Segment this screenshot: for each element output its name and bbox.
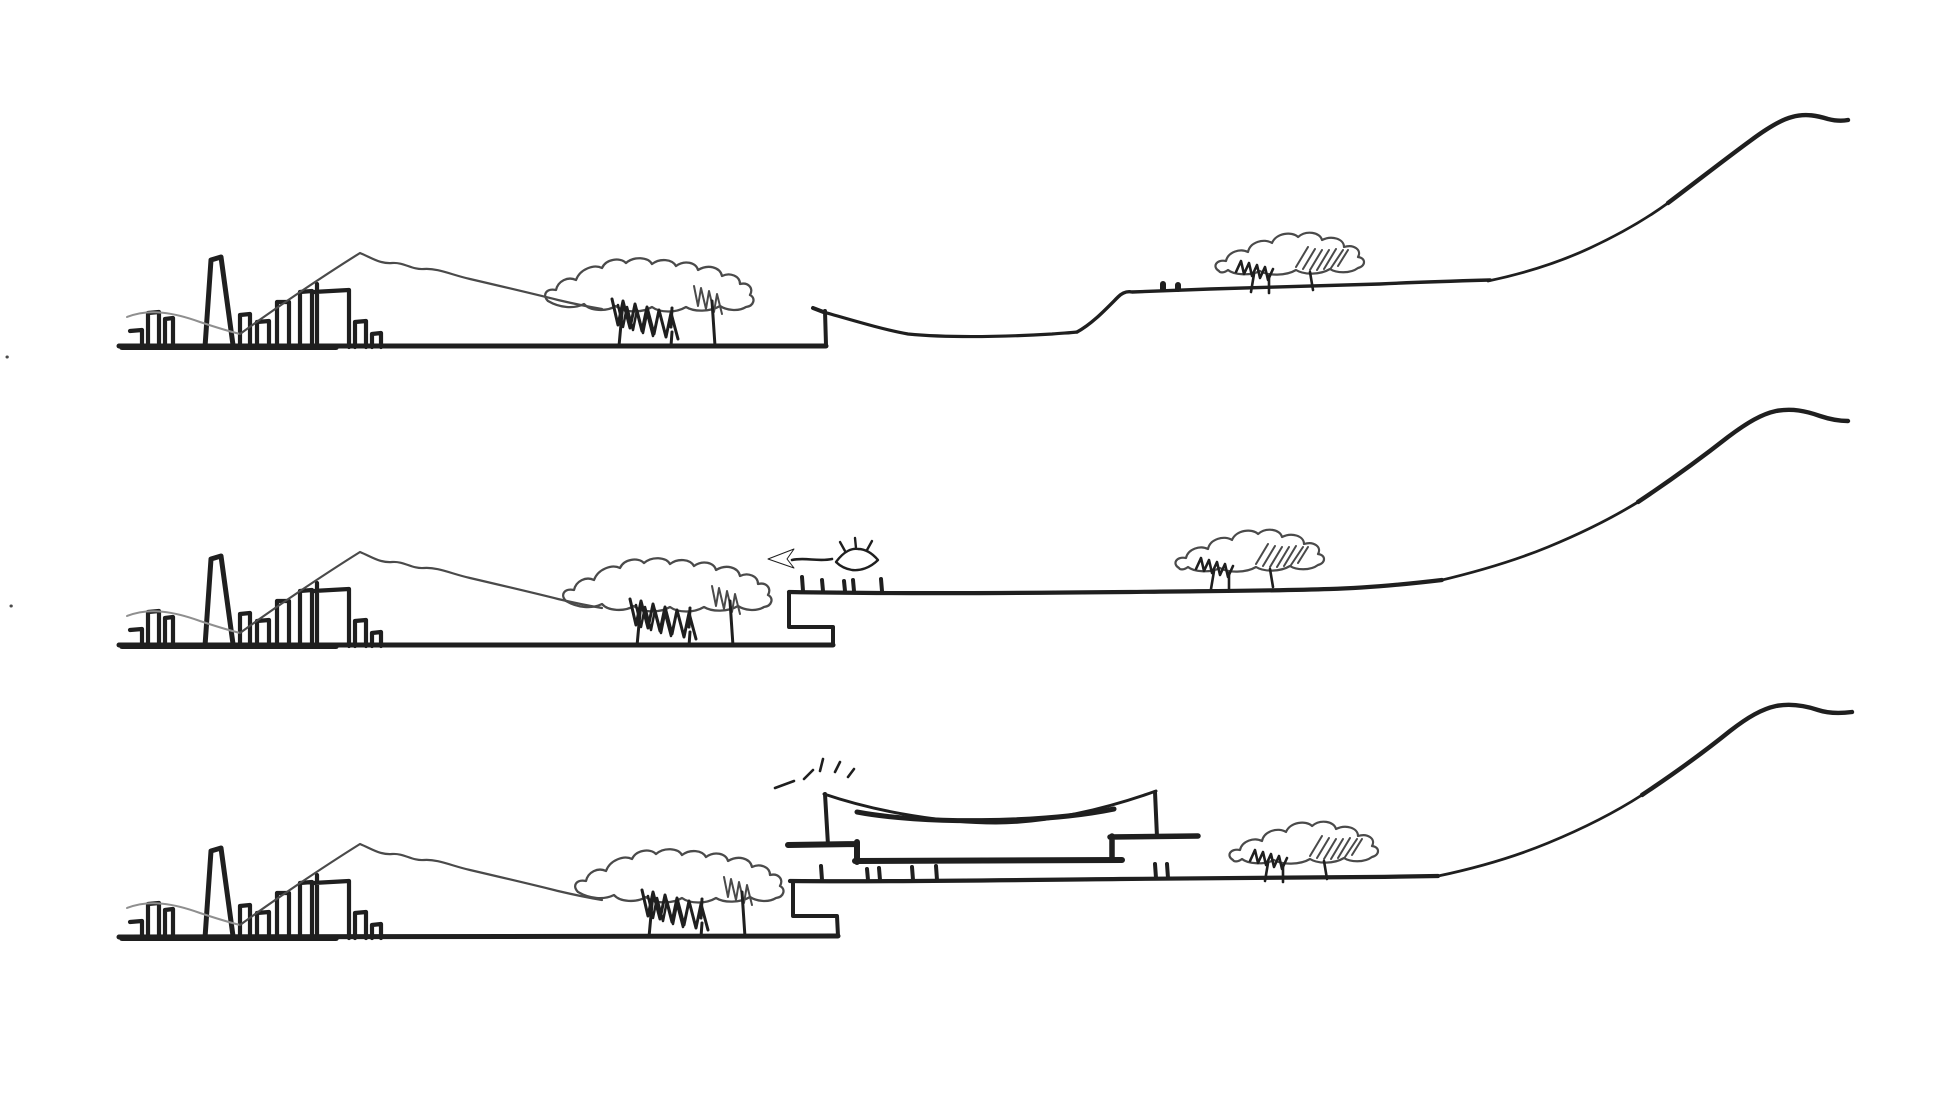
sunburst-icon <box>775 759 854 788</box>
section-3-proposed-pavilion <box>119 705 1852 938</box>
hill-slope-lower <box>1438 795 1642 876</box>
city-buildings-right <box>300 583 381 646</box>
tree-hatch-diagonal <box>1296 247 1348 270</box>
sunburst-rays <box>775 759 854 788</box>
city-chimney <box>205 556 233 646</box>
hillside-trees <box>1175 530 1324 590</box>
eye-outline <box>836 549 878 570</box>
waterfront-trees <box>545 258 753 346</box>
eye-lashes <box>840 538 872 551</box>
eye-icon <box>836 538 878 570</box>
city-chimney <box>205 848 233 938</box>
tree-canopy-outline <box>563 558 771 611</box>
tree-hatch-diagonal <box>1256 544 1308 567</box>
hill-slope-lower <box>1438 502 1638 581</box>
city-buildings-mid <box>240 893 289 938</box>
city-buildings-left <box>130 611 173 646</box>
deck-bollards <box>802 577 882 591</box>
city-skyline <box>122 848 381 938</box>
pavilion-roof-hatch <box>826 792 1157 858</box>
quay-wall-edge <box>813 308 826 345</box>
hill-slope-upper <box>1642 705 1852 795</box>
quay-step-profile <box>789 593 833 645</box>
deck-line <box>789 580 1442 593</box>
ridge-peak-line <box>240 253 602 334</box>
ridge-peak-line <box>240 844 602 925</box>
deck-line <box>790 876 1438 881</box>
pavilion-left-wall <box>825 794 828 845</box>
ridge-peak-line <box>240 552 602 633</box>
valley-profile <box>827 313 1077 337</box>
quay-step-profile <box>793 882 838 936</box>
tree-canopy-outline <box>575 849 783 902</box>
city-skyline <box>122 257 381 347</box>
platform-slab-right <box>1110 836 1198 858</box>
tree-hatch-diagonal <box>1310 836 1362 859</box>
city-skyline <box>122 556 381 646</box>
city-buildings-left <box>130 312 173 347</box>
pavilion-right-wall <box>1155 792 1157 837</box>
eye-pupil <box>851 554 863 566</box>
hill-slope-upper <box>1638 410 1848 502</box>
city-buildings-left <box>130 903 173 938</box>
waterfront-trees <box>575 849 783 937</box>
sketch-canvas <box>0 0 1954 1100</box>
bench-marker-dots <box>1163 284 1178 289</box>
arrow-left-icon <box>768 549 832 568</box>
upper-bench-profile <box>1077 280 1490 332</box>
city-buildings-right <box>300 284 381 347</box>
city-buildings-right <box>300 875 381 938</box>
pavilion-base-slab <box>855 860 1122 861</box>
pavilion-soffit-curve <box>857 809 1114 821</box>
hillside-trees <box>1229 822 1378 882</box>
site-section-sketch-svg <box>0 0 1954 1100</box>
ground-line <box>119 936 838 937</box>
arrow-head <box>768 549 794 568</box>
platform-slab-left <box>788 842 857 862</box>
hill-slope-lower <box>1488 203 1668 281</box>
arrow-shaft <box>792 559 832 560</box>
paper-speck-dots <box>7 357 11 606</box>
hill-slope-upper <box>1668 115 1848 203</box>
city-buildings-mid <box>240 302 289 347</box>
section-1-existing-site <box>7 115 1848 606</box>
section-2-view-from-edge <box>119 410 1848 646</box>
city-buildings-mid <box>240 601 289 646</box>
waterfront-trees <box>563 558 771 646</box>
city-chimney <box>205 257 233 347</box>
